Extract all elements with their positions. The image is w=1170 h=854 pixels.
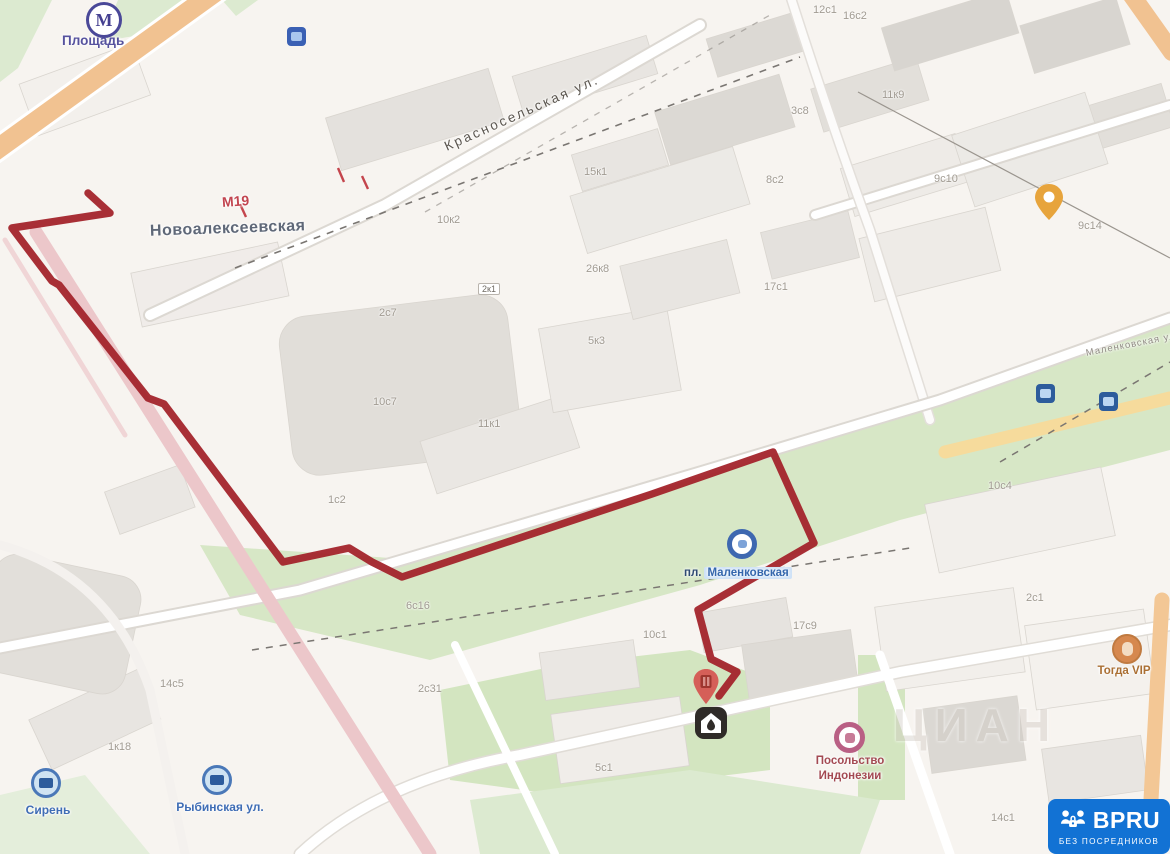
house-number: 2с7 [379, 307, 397, 319]
railway-platform-label: пл. Маленковская [684, 567, 792, 579]
bus-stop-label-left: Сирень [18, 803, 78, 817]
house-number: 3с8 [791, 105, 809, 117]
pin-glyph-slot [703, 677, 705, 686]
house-number: 14с5 [160, 678, 184, 690]
house-number: 10с4 [988, 480, 1012, 492]
pin-glyph [701, 675, 712, 688]
bus-stop-label-right: Рыбинская ул. [160, 800, 280, 814]
house-number: 17с9 [793, 620, 817, 632]
house-number: 6с16 [406, 600, 430, 612]
house-number: 14с1 [991, 812, 1015, 824]
platform-name-chip: Маленковская [704, 567, 791, 579]
bpru-title: BPRU [1093, 809, 1160, 832]
stop-badge: 2к1 [478, 283, 500, 295]
house-number: 11к1 [478, 418, 500, 430]
metro-letter: М [96, 10, 113, 31]
poi-pink-label-line1: Посольство [798, 755, 902, 767]
house-number: 2с31 [418, 683, 442, 695]
poi-pink-label-line2: Индонезии [800, 770, 900, 782]
poi-orange-icon[interactable] [1112, 634, 1142, 664]
house-number: 11к9 [882, 89, 904, 101]
house-number: 5к3 [588, 335, 605, 347]
pin-glyph-slot [707, 677, 709, 686]
house-number: 16с2 [843, 10, 867, 22]
bpru-subtitle: БЕЗ ПОСРЕДНИКОВ [1059, 837, 1159, 846]
watermark-text: ЦИАН [893, 698, 1058, 752]
pin-hole [1044, 192, 1055, 203]
transit-glyph [1103, 397, 1114, 406]
home-marker[interactable] [694, 706, 728, 740]
transit-icon-right-2[interactable] [1099, 392, 1118, 411]
poi-glyph [845, 733, 855, 743]
listing-pin[interactable] [691, 668, 721, 706]
house-number: 10к2 [437, 214, 460, 226]
transit-glyph [1040, 389, 1051, 398]
house-number: 5с1 [595, 762, 613, 774]
house-number: 12с1 [813, 4, 837, 16]
poi-orange-label: Тогда VIP [1078, 665, 1170, 677]
highway-shield-label: М19 [221, 192, 249, 210]
house-number: 9с10 [934, 173, 958, 185]
house-number: 9с14 [1078, 220, 1102, 232]
transit-icon-right-1[interactable] [1036, 384, 1055, 403]
bpru-badge: BPRU БЕЗ ПОСРЕДНИКОВ [1048, 799, 1170, 854]
house-number: 8с2 [766, 174, 784, 186]
metro-station-label: Площадь [62, 33, 124, 48]
bus-glyph [39, 778, 53, 788]
metro-station-icon[interactable]: М [86, 2, 122, 38]
transit-icon-top[interactable] [287, 27, 306, 46]
platform-glyph [738, 540, 747, 548]
house-number: 10с1 [643, 629, 667, 641]
transit-glyph [291, 32, 302, 41]
house-number: 1к18 [108, 741, 131, 753]
house-number: 1с2 [328, 494, 346, 506]
house-number: 26к8 [586, 263, 609, 275]
poi-glyph [1122, 642, 1133, 656]
house-number: 17с1 [764, 281, 788, 293]
platform-prefix: пл. [684, 567, 701, 579]
people-lock-icon [1058, 808, 1088, 834]
house-number: 10с7 [373, 396, 397, 408]
bus-glyph [210, 775, 224, 785]
poi-pink-icon[interactable] [834, 722, 865, 753]
bus-stop-icon-left[interactable] [31, 768, 61, 798]
house-number: 2с1 [1026, 592, 1044, 604]
house-number: 15к1 [584, 166, 607, 178]
railway-platform-icon[interactable] [727, 529, 757, 559]
map-viewport[interactable]: ЦИАН Площадь Новоалексеевская М19 Красно… [0, 0, 1170, 854]
destination-pin[interactable] [1032, 182, 1066, 222]
bus-stop-icon-right[interactable] [202, 765, 232, 795]
